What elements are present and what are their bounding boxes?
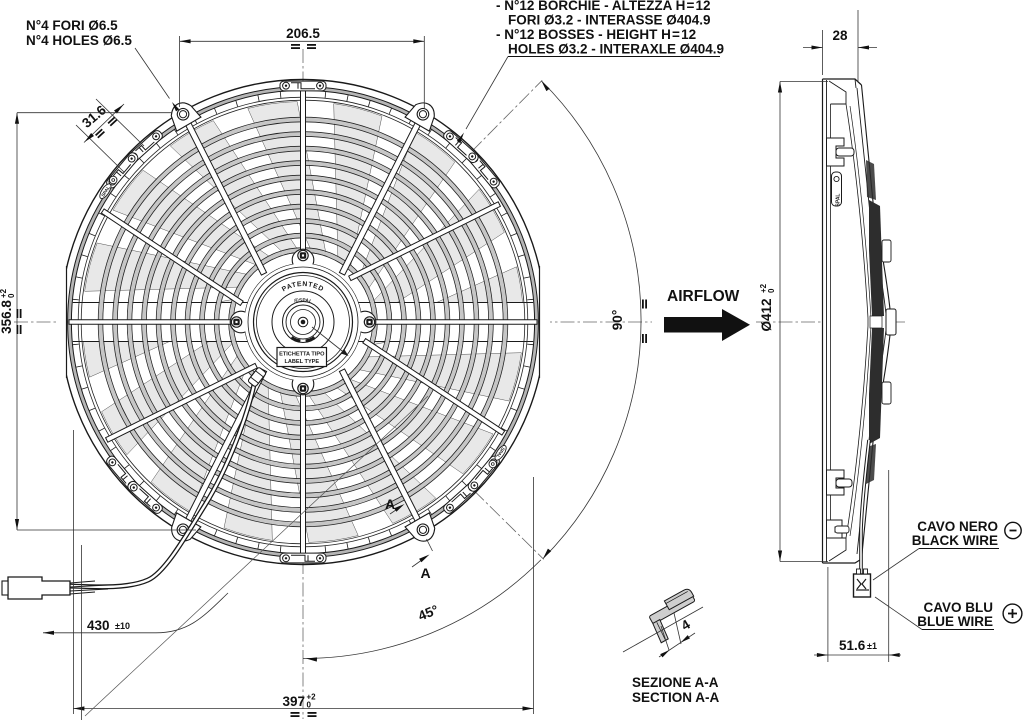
svg-text:SPAL: SPAL xyxy=(836,194,842,207)
svg-text:N°4 HOLES Ø6.5: N°4 HOLES Ø6.5 xyxy=(26,33,132,48)
svg-text:- N°12 BOSSES - HEIGHT H = 12: - N°12 BOSSES - HEIGHT H = 12 xyxy=(496,27,696,42)
svg-text:Ø412: Ø412 xyxy=(759,298,774,331)
svg-text:0: 0 xyxy=(307,701,312,710)
svg-text:0: 0 xyxy=(7,293,16,298)
svg-text:0: 0 xyxy=(767,288,776,293)
svg-text:90°: 90° xyxy=(610,310,625,330)
svg-text:SECTION A-A: SECTION A-A xyxy=(632,690,719,705)
svg-text:206.5: 206.5 xyxy=(286,26,320,41)
svg-text:- N°12 BORCHIE - ALTEZZA H = 1: - N°12 BORCHIE - ALTEZZA H = 12 xyxy=(496,0,711,13)
svg-text:ETICHETTA TIPO: ETICHETTA TIPO xyxy=(279,352,325,358)
svg-text:HOLES Ø3.2 - INTERAXLE Ø404.9: HOLES Ø3.2 - INTERAXLE Ø404.9 xyxy=(508,42,724,57)
svg-text:397: 397 xyxy=(282,694,305,709)
svg-text:A: A xyxy=(421,565,431,581)
svg-text:CAVO BLU: CAVO BLU xyxy=(924,600,994,615)
svg-text:BLACK WIRE: BLACK WIRE xyxy=(912,533,998,548)
svg-text:N°4 FORI Ø6.5: N°4 FORI Ø6.5 xyxy=(26,18,118,33)
svg-text:AIRFLOW: AIRFLOW xyxy=(667,288,740,305)
svg-text:28: 28 xyxy=(832,28,848,43)
svg-text:LABEL TYPE: LABEL TYPE xyxy=(284,359,319,365)
svg-text:51.6: 51.6 xyxy=(839,638,866,653)
svg-text:FORI Ø3.2 - INTERASSE Ø404.9: FORI Ø3.2 - INTERASSE Ø404.9 xyxy=(508,13,711,28)
svg-text:A: A xyxy=(385,496,395,512)
svg-text:±1: ±1 xyxy=(867,641,877,651)
svg-text:SEZIONE A-A: SEZIONE A-A xyxy=(632,675,719,690)
svg-text:±10: ±10 xyxy=(115,621,130,631)
svg-text:356.8: 356.8 xyxy=(0,300,14,334)
svg-text:430: 430 xyxy=(87,618,110,633)
svg-text:BLUE WIRE: BLUE WIRE xyxy=(917,614,993,629)
svg-text:CAVO NERO: CAVO NERO xyxy=(917,519,998,534)
